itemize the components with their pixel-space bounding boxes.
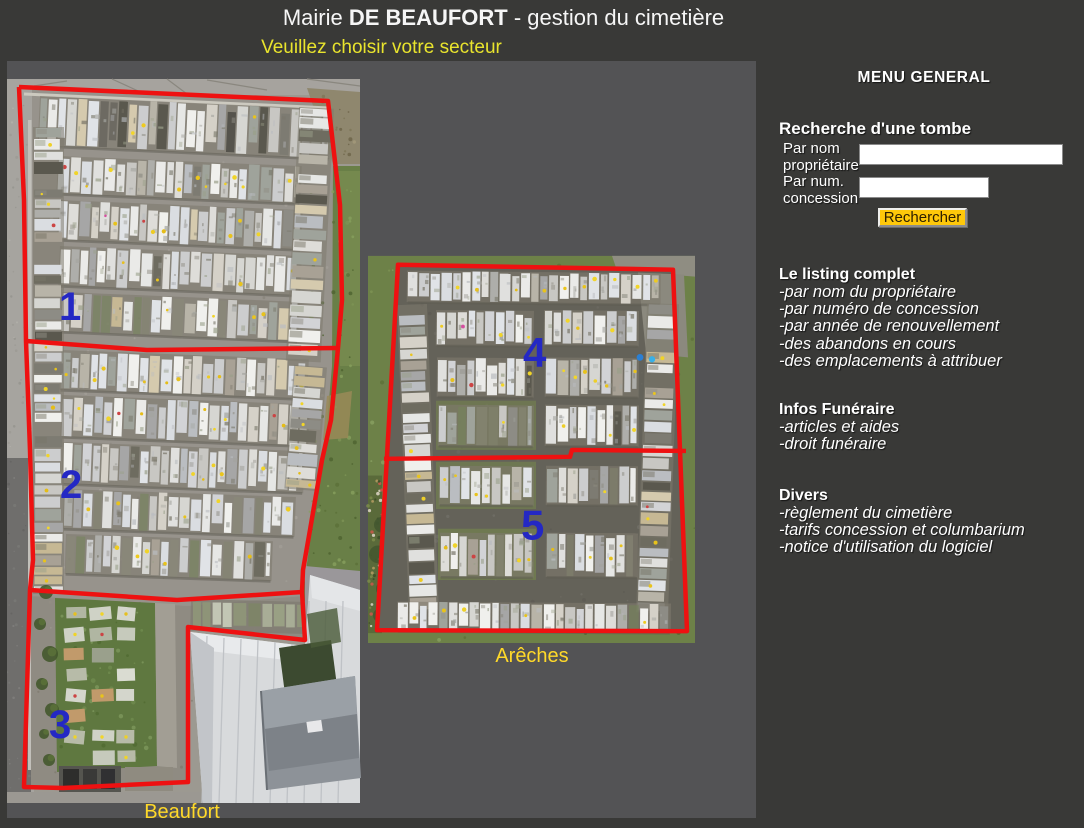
svg-text:2: 2 [60, 463, 82, 507]
svg-text:3: 3 [49, 703, 71, 747]
svg-text:4: 4 [523, 329, 546, 376]
svg-text:5: 5 [521, 502, 544, 549]
svg-text:1: 1 [59, 285, 81, 329]
